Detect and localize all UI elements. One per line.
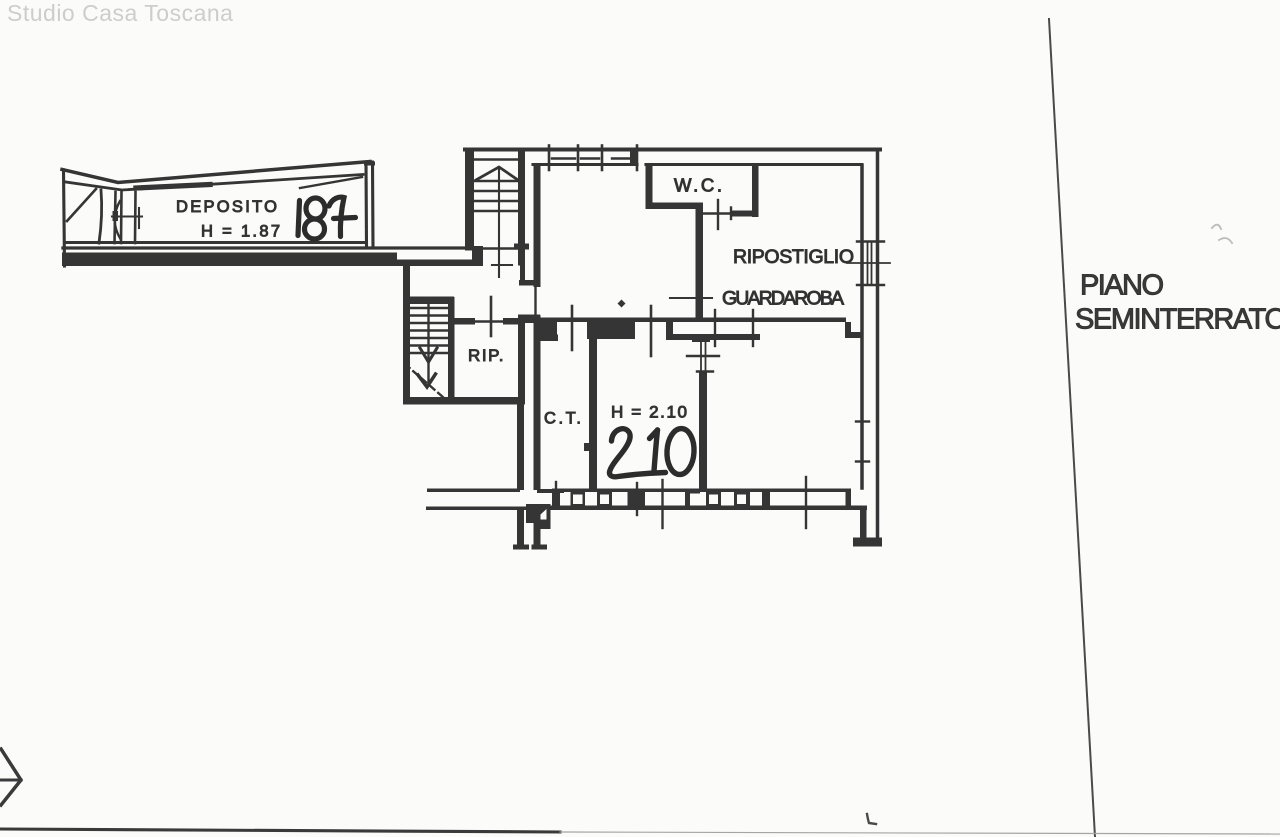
svg-text:H = 2.10: H = 2.10	[611, 403, 688, 422]
svg-text:SEMINTERRATO: SEMINTERRATO	[1075, 304, 1280, 336]
svg-text:Studio Casa Toscana: Studio Casa Toscana	[7, 0, 233, 26]
svg-text:GUARDAROBA: GUARDAROBA	[722, 288, 846, 310]
svg-text:C.T.: C.T.	[544, 410, 583, 428]
svg-text:H = 1.87: H = 1.87	[201, 223, 281, 241]
svg-text:W.C.: W.C.	[674, 175, 724, 196]
svg-text:RIPOSTIGLIO: RIPOSTIGLIO	[733, 246, 856, 268]
svg-text:DEPOSITO: DEPOSITO	[176, 198, 279, 216]
svg-text:RIP.: RIP.	[468, 346, 505, 365]
svg-text:PIANO: PIANO	[1080, 270, 1166, 302]
